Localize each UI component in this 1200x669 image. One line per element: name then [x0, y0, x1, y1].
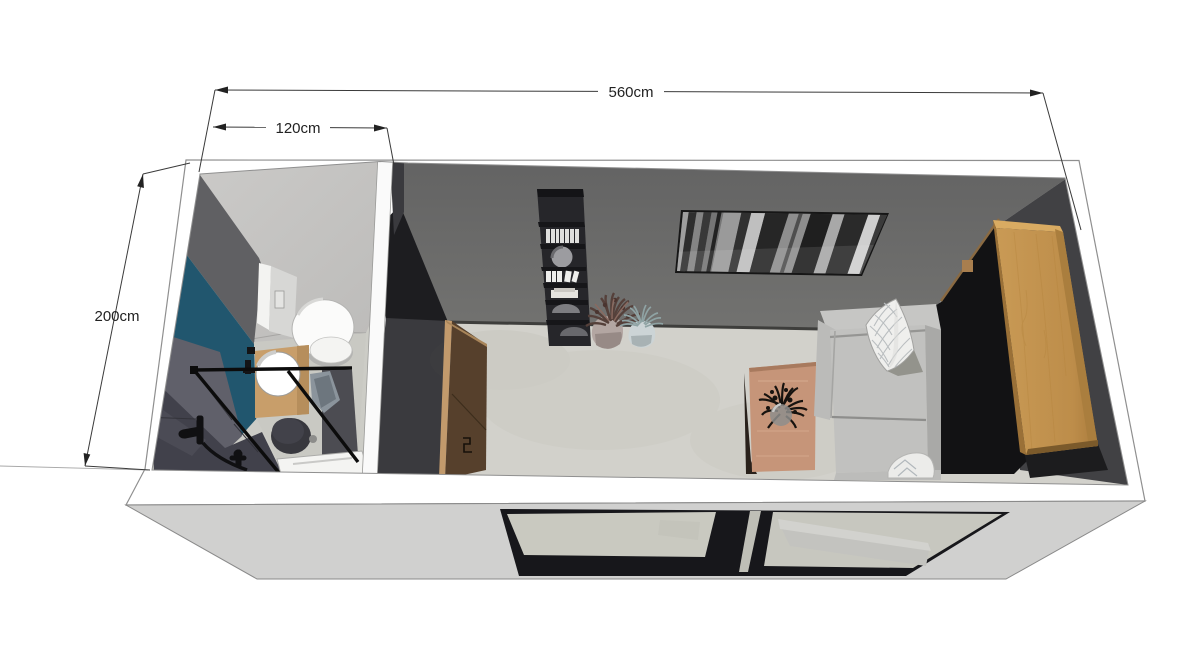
svg-text:200cm: 200cm	[94, 308, 139, 325]
svg-text:120cm: 120cm	[275, 120, 320, 137]
svg-text:560cm: 560cm	[608, 84, 653, 101]
